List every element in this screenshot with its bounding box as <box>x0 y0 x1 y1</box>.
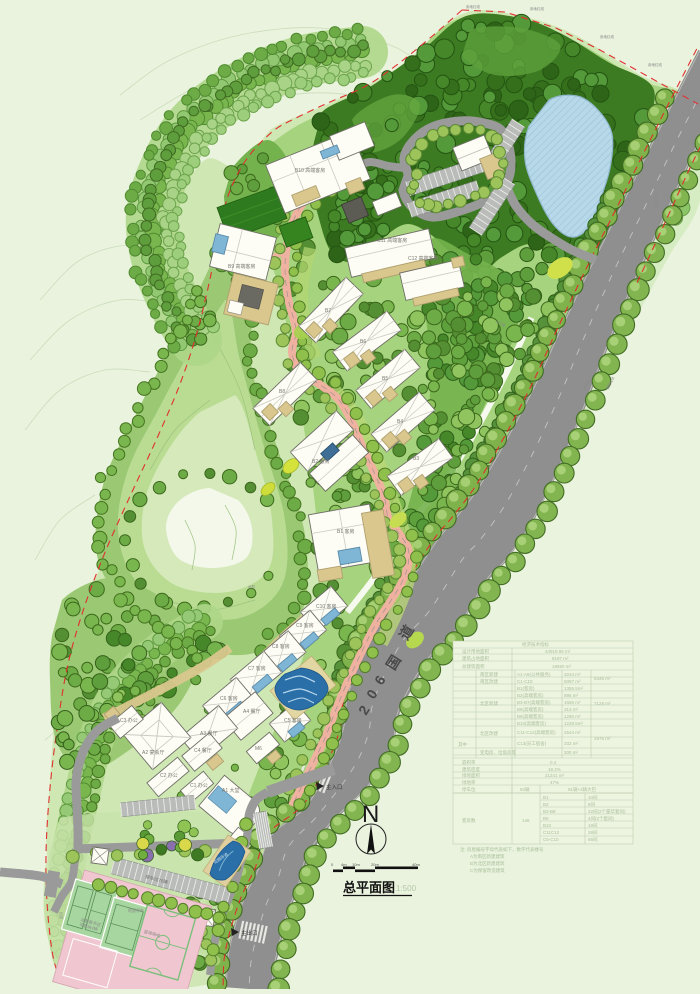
svg-text:2544 m²: 2544 m² <box>564 730 581 735</box>
svg-text:绿地率: 绿地率 <box>462 779 476 786</box>
svg-text:4间(2个套间): 4间(2个套间) <box>588 815 615 822</box>
svg-text:B9(高端客房): B9(高端客房) <box>517 713 544 720</box>
svg-text:建筑密度: 建筑密度 <box>462 766 480 773</box>
svg-text:B10 高端客房: B10 高端客房 <box>295 167 325 174</box>
svg-text:台阶: 台阶 <box>248 584 256 589</box>
svg-text:7128 m²: 7128 m² <box>594 701 611 706</box>
svg-text:B8: B8 <box>279 389 285 395</box>
svg-text:C11 高端客房: C11 高端客房 <box>377 237 407 244</box>
svg-text:18间: 18间 <box>588 822 598 829</box>
svg-text:313 m²: 313 m² <box>564 707 579 712</box>
svg-text:0.4: 0.4 <box>550 760 557 765</box>
svg-text:4m: 4m <box>341 862 347 867</box>
svg-text:地面停车: 地面停车 <box>128 907 144 913</box>
svg-text:B为北区新建建筑: B为北区新建建筑 <box>470 860 505 867</box>
svg-text:C11-C12(高端客房): C11-C12(高端客房) <box>517 729 556 736</box>
svg-text:44919.95 m²: 44919.95 m² <box>545 649 571 654</box>
svg-text:B3: B3 <box>413 456 419 462</box>
svg-text:用地红线: 用地红线 <box>654 195 659 209</box>
svg-text:主入口: 主入口 <box>326 783 343 791</box>
svg-text:变电房、垃圾房等: 变电房、垃圾房等 <box>480 749 516 756</box>
svg-text:C1 办公: C1 办公 <box>190 782 208 789</box>
svg-text:C7 客房: C7 客房 <box>248 665 266 672</box>
svg-text:北区改建: 北区改建 <box>480 730 498 737</box>
svg-text:A1-A6(公共服务): A1-A6(公共服务) <box>517 671 551 678</box>
svg-text:1665 m²: 1665 m² <box>564 700 581 705</box>
svg-text:C5 客房: C5 客房 <box>284 717 302 724</box>
svg-text:南区新建: 南区新建 <box>480 671 498 678</box>
svg-text:C11C12: C11C12 <box>543 830 560 835</box>
svg-text:21241 m²: 21241 m² <box>545 773 565 778</box>
svg-text:南区改建: 南区改建 <box>480 678 498 685</box>
svg-text:1355.5m²: 1355.5m² <box>564 686 584 691</box>
svg-text:5097 m²: 5097 m² <box>564 679 581 684</box>
svg-text:1:500: 1:500 <box>396 884 417 893</box>
svg-text:用地红线: 用地红线 <box>530 6 544 11</box>
svg-text:B1(客房): B1(客房) <box>517 685 535 692</box>
svg-text:B1: B1 <box>543 795 549 800</box>
svg-text:B2 客房: B2 客房 <box>312 458 330 465</box>
svg-text:M6: M6 <box>255 746 262 752</box>
svg-text:40m: 40m <box>412 862 420 867</box>
svg-text:主出口: 主出口 <box>241 929 258 937</box>
svg-text:B5: B5 <box>382 376 388 382</box>
svg-text:C为保留改造建筑: C为保留改造建筑 <box>470 867 505 874</box>
svg-text:用地红线: 用地红线 <box>648 62 662 67</box>
svg-text:896 m²: 896 m² <box>564 693 579 698</box>
svg-text:B9 高端客房: B9 高端客房 <box>228 263 256 270</box>
svg-text:B3-B7(高端客房): B3-B7(高端客房) <box>517 699 551 706</box>
svg-text:10间: 10间 <box>588 794 598 801</box>
svg-text:A4 餐厅: A4 餐厅 <box>243 708 261 715</box>
svg-text:B2(高端客房): B2(高端客房) <box>517 692 544 699</box>
svg-text:8346 m²: 8346 m² <box>594 676 611 681</box>
svg-text:18550 m²: 18550 m² <box>552 664 572 669</box>
svg-text:B7: B7 <box>325 308 331 314</box>
svg-text:C13(员工宿舍): C13(员工宿舍) <box>517 740 547 747</box>
svg-text:47%: 47% <box>550 780 559 785</box>
svg-text:B2: B2 <box>543 802 549 807</box>
svg-text:56间: 56间 <box>588 836 598 843</box>
svg-text:C4 餐厅: C4 餐厅 <box>194 747 212 754</box>
svg-text:A1 大堂: A1 大堂 <box>222 787 240 794</box>
svg-text:B3-B8: B3-B8 <box>543 809 556 814</box>
svg-text:2876 m²: 2876 m² <box>594 736 611 741</box>
svg-text:20m: 20m <box>371 862 379 867</box>
svg-text:A为南区新建建筑: A为南区新建建筑 <box>470 853 505 860</box>
svg-text:C1-C10: C1-C10 <box>517 679 533 684</box>
svg-text:客房数: 客房数 <box>462 817 476 824</box>
svg-text:8间: 8间 <box>588 801 596 808</box>
svg-text:A3 餐厅: A3 餐厅 <box>200 730 218 737</box>
svg-text:C9 客房: C9 客房 <box>296 622 314 629</box>
svg-text:332 m²: 332 m² <box>564 741 579 746</box>
svg-text:1280 m²: 1280 m² <box>564 714 581 719</box>
svg-text:200 m²: 200 m² <box>564 750 579 755</box>
svg-text:绿地面积: 绿地面积 <box>462 772 480 779</box>
svg-text:北区新建: 北区新建 <box>480 700 498 707</box>
svg-text:经济技术指标: 经济技术指标 <box>522 641 549 648</box>
svg-text:93辆: 93辆 <box>520 786 530 793</box>
svg-text:用地红线: 用地红线 <box>466 4 480 9</box>
svg-text:B9: B9 <box>543 816 549 821</box>
svg-text:C2 办公: C2 办公 <box>160 772 178 779</box>
svg-text:10m: 10m <box>352 862 360 867</box>
svg-text:红线: 红线 <box>59 912 64 920</box>
svg-text:建筑占地面积: 建筑占地面积 <box>462 655 489 662</box>
svg-text:C8 客房: C8 客房 <box>272 643 290 650</box>
svg-text:91辆+2辆大巴: 91辆+2辆大巴 <box>568 786 597 793</box>
svg-text:A2 宴会厅: A2 宴会厅 <box>142 749 165 756</box>
svg-text:C6-C10: C6-C10 <box>543 837 559 842</box>
svg-text:18.2%: 18.2% <box>548 767 561 772</box>
svg-text:B10: B10 <box>543 823 552 828</box>
svg-text:C3 办公: C3 办公 <box>120 717 138 724</box>
svg-text:146: 146 <box>522 818 530 823</box>
svg-text:用地红线: 用地红线 <box>600 34 614 39</box>
svg-text:28间: 28间 <box>588 829 598 836</box>
svg-text:B10(高端客房): B10(高端客房) <box>517 720 547 727</box>
svg-text:B6: B6 <box>360 339 366 345</box>
svg-text:注: 房屋编号字母代表如下，数字代表楼号: 注: 房屋编号字母代表如下，数字代表楼号 <box>460 846 544 853</box>
svg-text:C12 高端客房: C12 高端客房 <box>408 255 439 262</box>
svg-text:总建筑面积: 总建筑面积 <box>462 663 485 670</box>
svg-text:B1 客房: B1 客房 <box>337 528 355 535</box>
svg-text:总平面图: 总平面图 <box>343 880 395 895</box>
svg-text:容积率: 容积率 <box>462 759 476 766</box>
svg-text:其中: 其中 <box>458 741 467 748</box>
svg-text:C10 客房: C10 客房 <box>316 603 337 610</box>
svg-text:1228.5m²: 1228.5m² <box>564 721 584 726</box>
svg-text:22间(2个豪华套间): 22间(2个豪华套间) <box>588 808 626 815</box>
svg-text:B4: B4 <box>397 419 403 425</box>
svg-text:B8(高端客房): B8(高端客房) <box>517 706 544 713</box>
svg-text:8197 m²: 8197 m² <box>552 656 569 661</box>
svg-text:3244 m²: 3244 m² <box>564 672 581 677</box>
svg-text:设计用地面积: 设计用地面积 <box>462 648 489 655</box>
svg-text:C6 客房: C6 客房 <box>220 695 238 702</box>
svg-text:停车位: 停车位 <box>462 786 476 793</box>
